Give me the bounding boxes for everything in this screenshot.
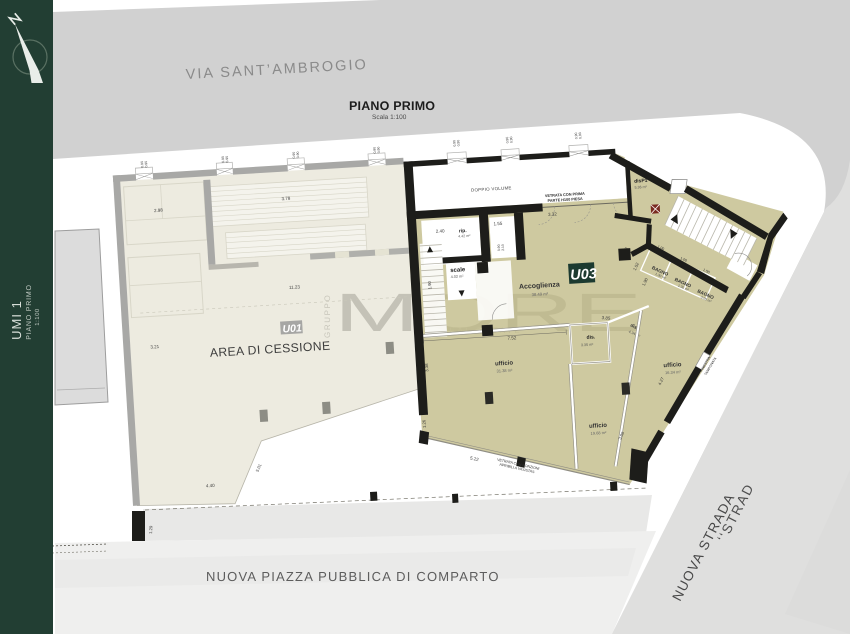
svg-text:1.55: 1.55 — [493, 221, 503, 227]
svg-text:0.90: 0.90 — [509, 136, 513, 143]
svg-text:2.98: 2.98 — [154, 208, 164, 214]
svg-text:PIANO PRIMO: PIANO PRIMO — [26, 284, 33, 339]
svg-text:31.38 m²: 31.38 m² — [496, 367, 513, 373]
svg-text:UMI 1: UMI 1 — [9, 300, 24, 340]
svg-text:U01: U01 — [282, 322, 302, 335]
svg-text:NUOVA PIAZZA PUBBLICA DI COMPA: NUOVA PIAZZA PUBBLICA DI COMPARTO — [206, 569, 500, 584]
svg-text:7.52: 7.52 — [507, 335, 517, 341]
svg-text:0.90: 0.90 — [377, 146, 381, 153]
svg-text:0.90: 0.90 — [225, 156, 229, 163]
svg-text:ufficio: ufficio — [589, 422, 608, 430]
svg-text:ufficio: ufficio — [495, 359, 514, 367]
svg-text:3.78: 3.78 — [281, 196, 291, 202]
svg-text:0.90: 0.90 — [296, 151, 300, 158]
svg-text:0.90: 0.90 — [144, 161, 148, 168]
svg-text:3.21: 3.21 — [150, 344, 160, 350]
svg-text:1:100: 1:100 — [34, 308, 41, 326]
svg-text:2.10: 2.10 — [501, 244, 505, 251]
svg-text:0.90: 0.90 — [456, 140, 460, 147]
svg-text:11.23: 11.23 — [289, 284, 301, 290]
svg-text:scale: scale — [450, 266, 466, 274]
svg-text:4.40: 4.40 — [206, 483, 216, 489]
svg-text:3.35 m²: 3.35 m² — [581, 342, 594, 347]
svg-text:dis.: dis. — [586, 334, 596, 341]
svg-text:16.34 m²: 16.34 m² — [665, 369, 682, 375]
svg-text:disP1: disP1 — [634, 178, 648, 185]
svg-text:1.26: 1.26 — [421, 419, 427, 428]
svg-text:3.32: 3.32 — [548, 211, 558, 217]
svg-text:2.40: 2.40 — [436, 228, 446, 234]
svg-text:1.29: 1.29 — [148, 525, 153, 534]
svg-text:0.90: 0.90 — [578, 132, 582, 139]
svg-text:5.36 m²: 5.36 m² — [634, 185, 647, 190]
svg-text:U03: U03 — [570, 266, 598, 284]
svg-text:Scala 1:100: Scala 1:100 — [372, 114, 407, 121]
svg-text:4.42 m²: 4.42 m² — [458, 234, 471, 239]
svg-text:PIANO PRIMO: PIANO PRIMO — [349, 99, 435, 113]
svg-text:3.85: 3.85 — [601, 315, 611, 321]
svg-text:ufficio: ufficio — [663, 361, 682, 369]
svg-text:19.68 m²: 19.68 m² — [590, 430, 607, 436]
svg-text:1.90: 1.90 — [427, 280, 433, 289]
svg-text:38.49 m²: 38.49 m² — [531, 291, 548, 297]
svg-text:4.02 m²: 4.02 m² — [451, 274, 465, 279]
